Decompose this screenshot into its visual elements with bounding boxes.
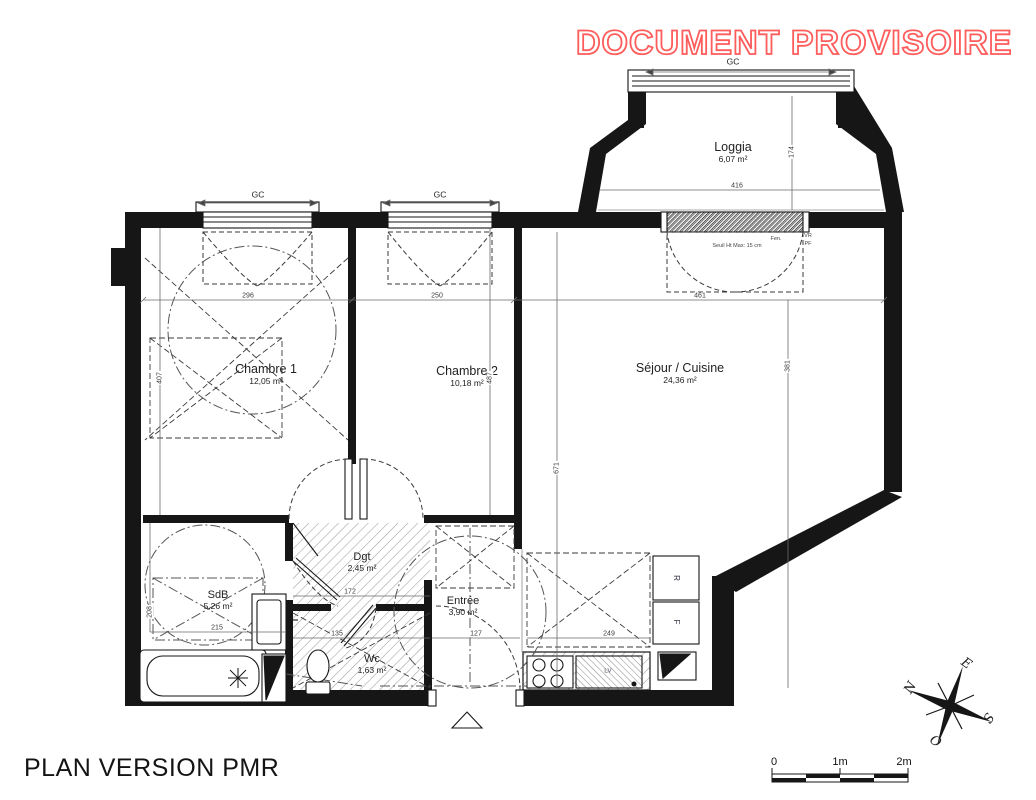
window-tag-chambre2: GC bbox=[432, 191, 449, 200]
dim-chambre2-height: 487 bbox=[486, 371, 493, 385]
floor-plan-drawing bbox=[0, 0, 1036, 800]
shower-head-symbol bbox=[228, 668, 248, 688]
toilet bbox=[307, 650, 329, 682]
dim-sejour-width: 461 bbox=[693, 292, 707, 299]
dim-sdb-height: 208 bbox=[146, 605, 153, 619]
dim-loggia-height: 174 bbox=[788, 145, 795, 159]
scale-label-1m: 1m bbox=[832, 757, 847, 769]
window-note-vr: VR bbox=[804, 234, 812, 240]
room-label-sejour: Séjour / Cuisine 24,36 m² bbox=[636, 361, 724, 385]
dim-chambre1-width: 296 bbox=[241, 292, 255, 299]
window-note-pf: PF bbox=[804, 242, 811, 248]
dim-kitchen-width: 249 bbox=[602, 630, 616, 637]
provisional-stamp: DOCUMENT PROVISOIRE bbox=[576, 24, 986, 63]
fridge-label: R bbox=[672, 575, 680, 581]
dim-sdb-width: 215 bbox=[210, 624, 224, 631]
walls bbox=[111, 86, 904, 706]
dim-wc-width: 135 bbox=[330, 630, 344, 637]
scale-label-2m: 2m bbox=[896, 757, 911, 769]
floor-boundaries bbox=[522, 210, 884, 652]
dim-chambre2-width: 250 bbox=[430, 292, 444, 299]
compass-rose bbox=[908, 666, 992, 746]
window-note-fen: Fen. bbox=[770, 237, 781, 243]
room-label-loggia: Loggia 6,07 m² bbox=[714, 140, 752, 164]
scale-label-0: 0 bbox=[771, 757, 777, 769]
dim-sejour-height: 381 bbox=[784, 359, 791, 373]
oven-label: F bbox=[672, 620, 680, 625]
room-label-entree: Entrée 3,90 m² bbox=[447, 595, 479, 617]
room-label-wc: Wc 1,63 m² bbox=[358, 653, 387, 675]
window-tag-chambre1: GC bbox=[250, 191, 267, 200]
dim-loggia-width: 416 bbox=[730, 182, 744, 189]
floor-plan-page: DOCUMENT PROVISOIRE PLAN VERSION PMR Cha… bbox=[0, 0, 1036, 800]
room-label-sdb: SdB 5,26 m² bbox=[204, 589, 233, 611]
room-label-dgt: Dgt 2,45 m² bbox=[348, 551, 377, 573]
dim-dgt-width: 172 bbox=[343, 588, 357, 595]
windows bbox=[196, 70, 854, 232]
threshold-note: Seuil Ht Max: 15 cm bbox=[712, 244, 761, 250]
scale-bar bbox=[772, 768, 908, 782]
room-label-chambre1: Chambre 1 12,05 m² bbox=[235, 362, 297, 386]
dim-entree-width: 127 bbox=[469, 630, 483, 637]
dishwasher-label: LV bbox=[604, 669, 611, 676]
dim-hall-height: 671 bbox=[553, 461, 560, 475]
entrance-triangle bbox=[452, 712, 482, 728]
window-tag-loggia: GC bbox=[725, 58, 742, 67]
plan-title: PLAN VERSION PMR bbox=[24, 754, 279, 783]
dim-chambre1-height: 407 bbox=[156, 371, 163, 385]
